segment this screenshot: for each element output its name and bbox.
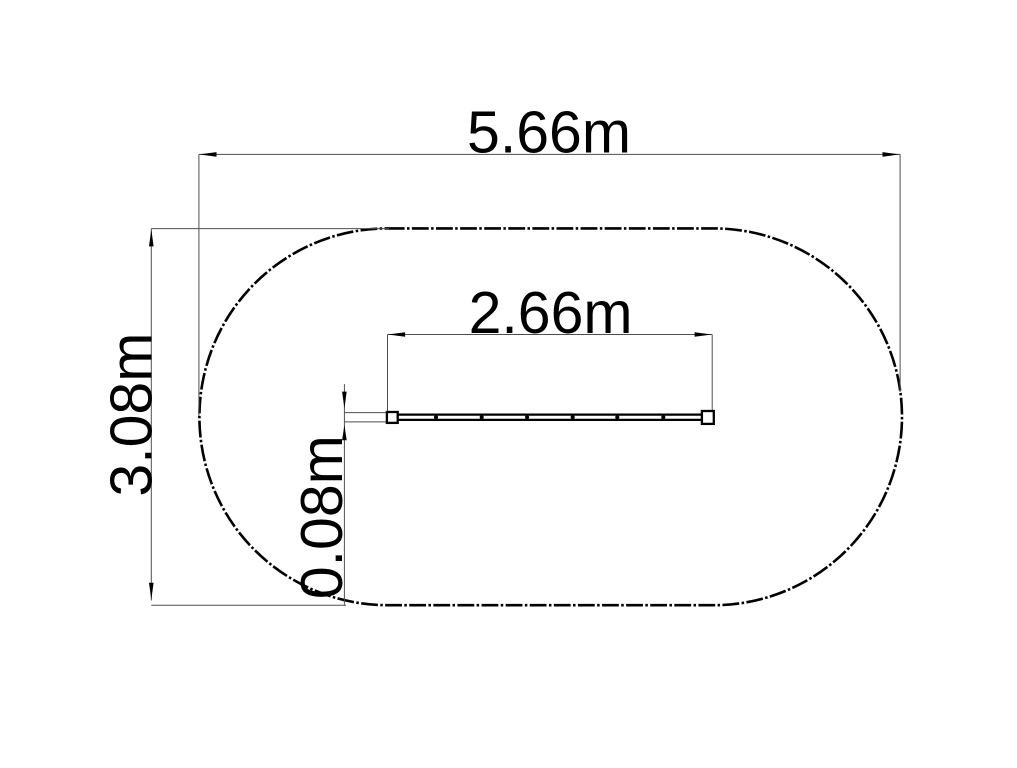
svg-text:3.08m: 3.08m xyxy=(98,333,164,497)
svg-text:5.66m: 5.66m xyxy=(467,100,631,166)
svg-text:2.66m: 2.66m xyxy=(469,280,633,346)
svg-text:0.08m: 0.08m xyxy=(289,435,355,599)
